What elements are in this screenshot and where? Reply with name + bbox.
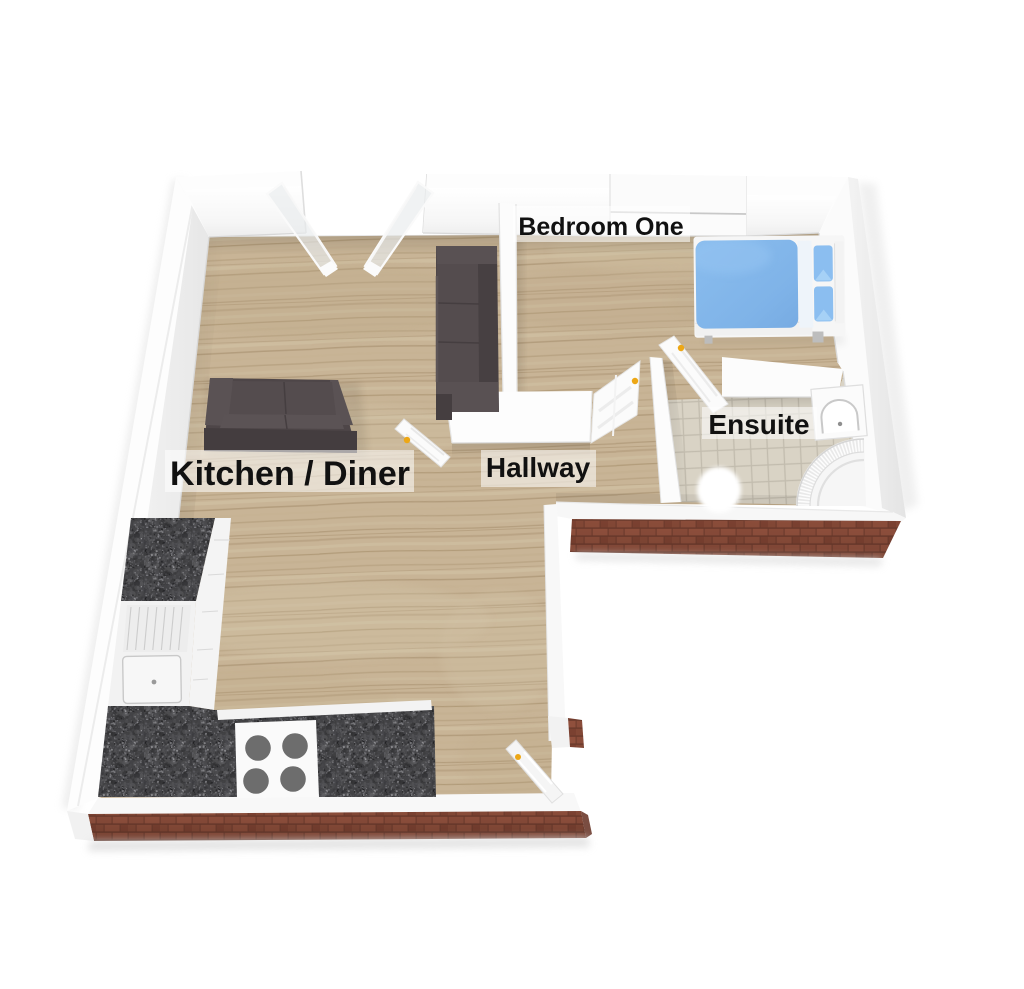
svg-text:Ensuite: Ensuite [708, 409, 809, 440]
svg-text:Hallway: Hallway [486, 452, 591, 483]
svg-text:Kitchen / Diner: Kitchen / Diner [170, 455, 410, 493]
svg-text:Bedroom One: Bedroom One [518, 213, 683, 241]
